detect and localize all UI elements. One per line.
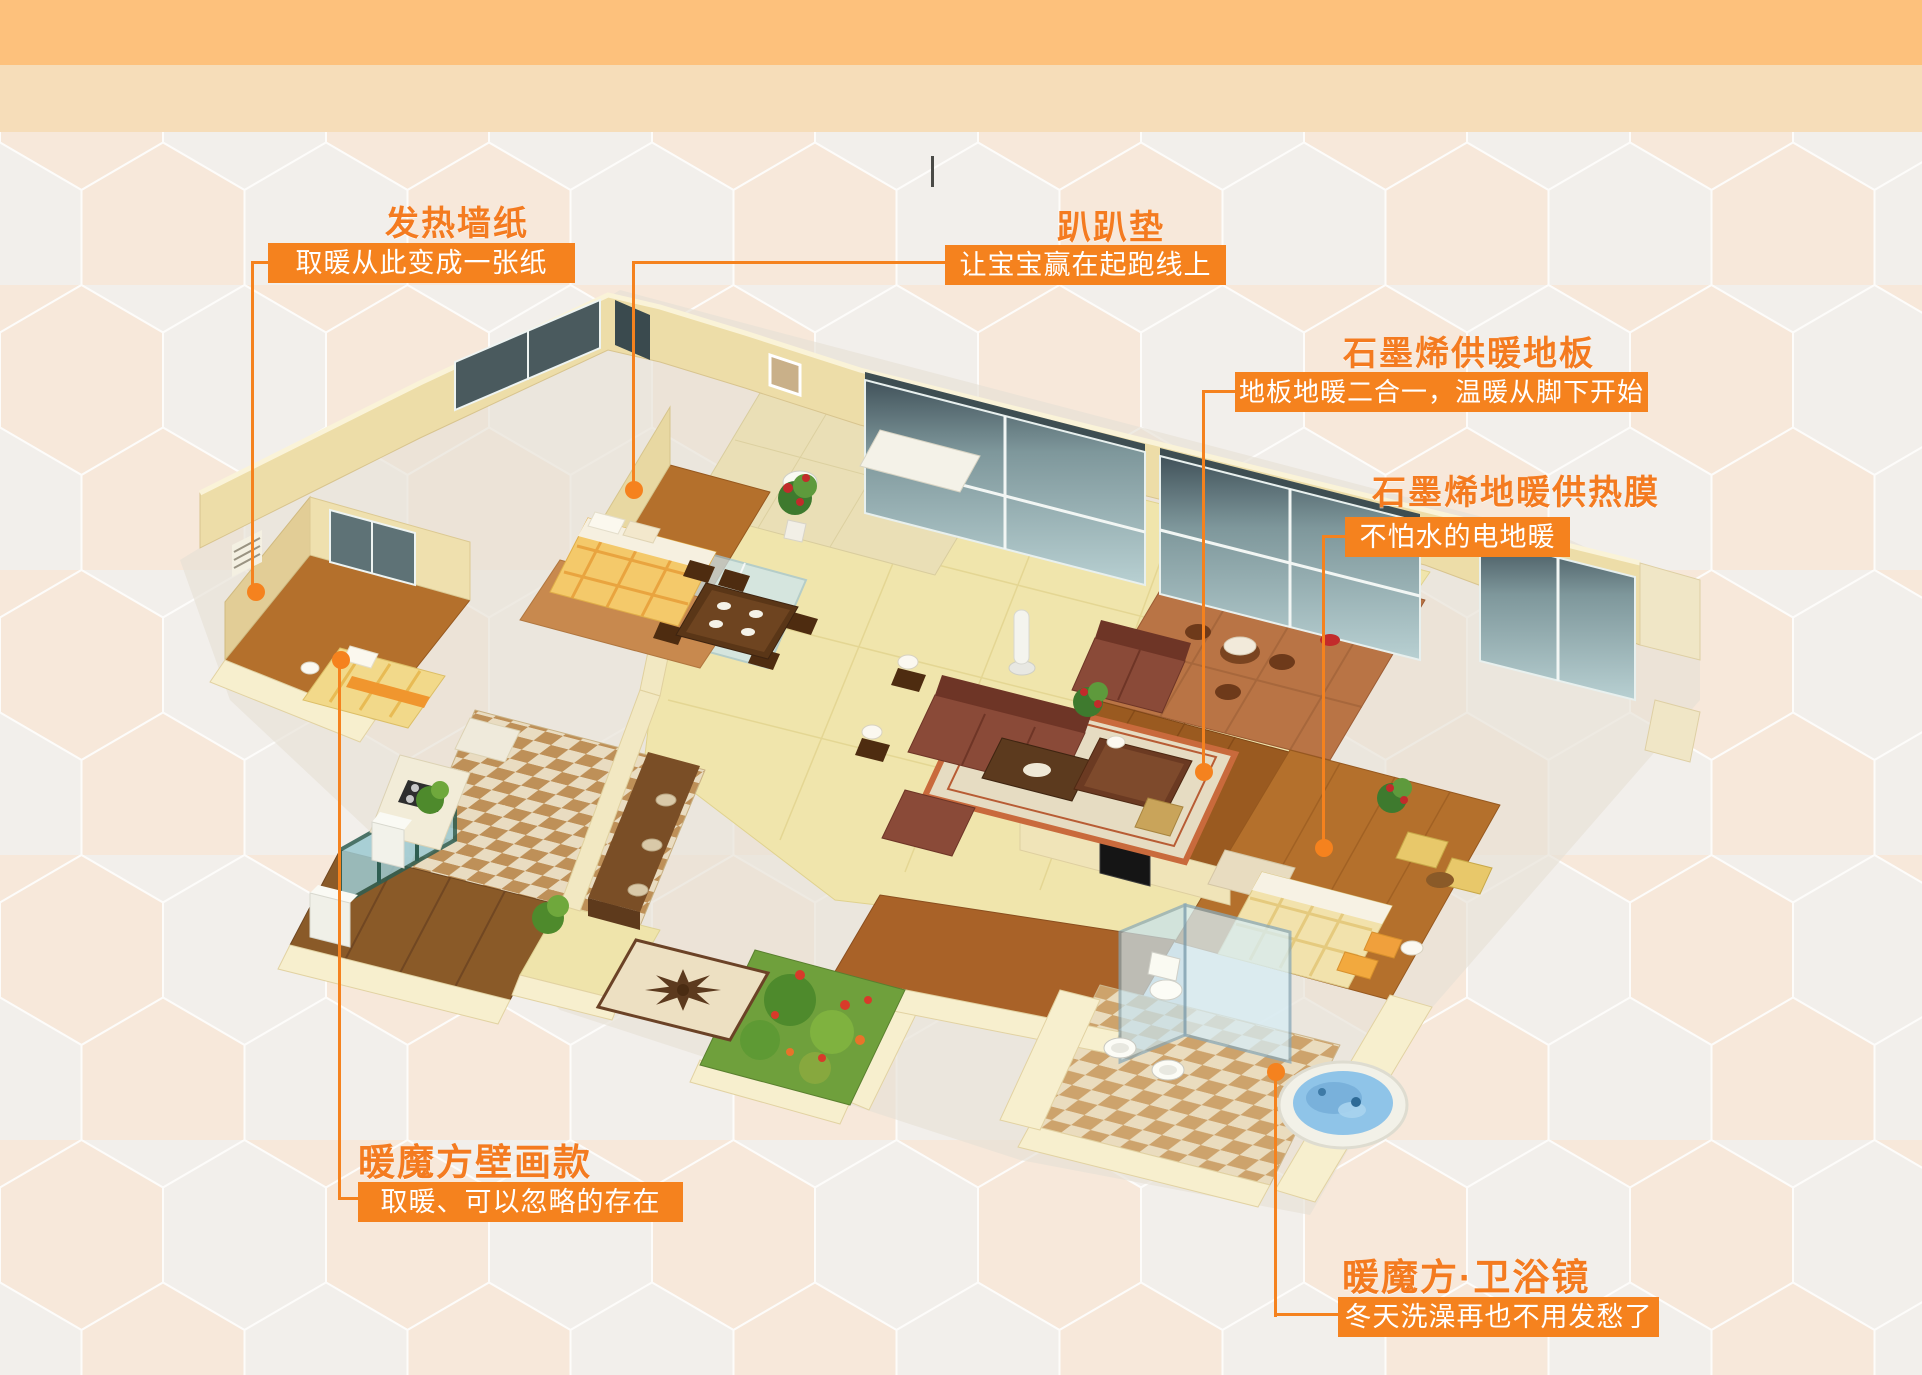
callout-connector-line — [632, 261, 635, 491]
callout-dot — [1267, 1063, 1285, 1081]
callout-subtitle-box: 取暖从此变成一张纸 — [268, 243, 575, 283]
callout-subtitle-box: 取暖、可以忽略的存在 — [358, 1182, 683, 1222]
callout-connector-line — [251, 261, 254, 593]
callout-dot — [625, 481, 643, 499]
callout-title: 石墨烯地暖供热膜 — [1372, 465, 1660, 514]
callout-connector-line — [338, 660, 341, 1200]
callout-subtitle-box: 不怕水的电地暖 — [1345, 517, 1570, 557]
callout-connector-line — [1322, 535, 1325, 849]
text-caret-artifact — [931, 156, 934, 187]
callout-subtitle-box: 地板地暖二合一，温暖从脚下开始 — [1235, 372, 1648, 412]
callout-dot — [1195, 763, 1213, 781]
callout-connector-line — [1274, 1313, 1340, 1316]
callout-title: 暖魔方壁画款 — [358, 1132, 592, 1186]
callout-connector-line — [338, 1197, 360, 1200]
callout-title: 趴趴垫 — [1057, 200, 1165, 249]
callout-subtitle-box: 冬天洗澡再也不用发愁了 — [1338, 1297, 1659, 1337]
callout-dot — [247, 583, 265, 601]
callout-subtitle-box: 让宝宝赢在起跑线上 — [945, 245, 1226, 285]
header-band-bottom — [0, 65, 1922, 132]
callout-connector-line — [1274, 1072, 1277, 1317]
callout-title: 石墨烯供暖地板 — [1343, 326, 1595, 375]
callout-title: 发热墙纸 — [385, 196, 529, 245]
callout-title: 暖魔方·卫浴镜 — [1342, 1247, 1590, 1301]
callout-dot — [332, 651, 350, 669]
hexagon-background — [0, 0, 1922, 1375]
callout-connector-line — [1322, 535, 1345, 538]
callout-connector-line — [632, 261, 945, 264]
callout-connector-line — [1202, 390, 1235, 393]
callout-connector-line — [1202, 390, 1205, 773]
callout-dot — [1315, 839, 1333, 857]
header-band-top — [0, 0, 1922, 65]
